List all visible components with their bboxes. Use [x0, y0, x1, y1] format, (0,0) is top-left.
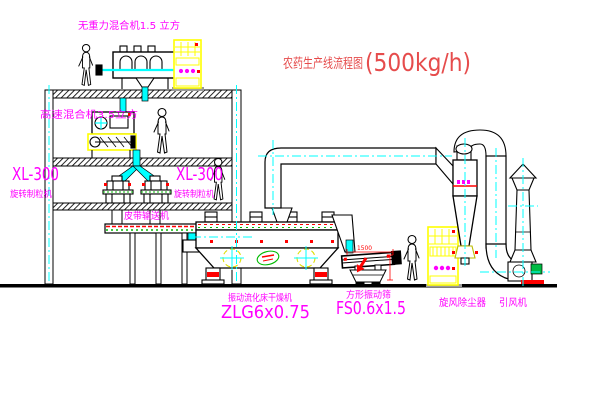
cad-flow-diagram: 无重力混合机1.5 立方 农药生产线流程图 (500kg/h) 高速混合机3.5…	[0, 0, 600, 403]
label-xl300-right: XL-300	[176, 164, 223, 185]
high-speed-mixer	[88, 98, 136, 158]
label-sieve-dimension: 1500	[357, 244, 372, 252]
label-gravity-mixer: 无重力混合机1.5 立方	[78, 19, 180, 32]
label-dryer-model: ZLG6x0.75	[221, 302, 310, 323]
worker-figure-4	[404, 236, 419, 281]
worker-figure-2	[154, 109, 169, 154]
exhaust-duct	[265, 148, 436, 208]
page-title-capacity: (500kg/h)	[365, 48, 471, 77]
label-high-speed-mixer: 高速混合机3.5立方	[40, 108, 138, 121]
page-title: 农药生产线流程图	[283, 56, 363, 72]
indicator-dot	[195, 43, 198, 46]
label-xl300-left: XL-300	[12, 164, 59, 185]
label-belt-conveyor: 皮带输送机	[124, 210, 169, 222]
label-cyclone: 旋风除尘器	[439, 296, 486, 309]
label-granulator-right: 旋转制粒机	[174, 188, 214, 200]
worker-figure-1	[79, 44, 93, 85]
fluid-bed-dryer	[183, 208, 338, 284]
drawing-canvas: 无重力混合机1.5 立方 农药生产线流程图 (500kg/h) 高速混合机3.5…	[0, 0, 600, 403]
granulator-right	[141, 176, 171, 203]
label-granulator-left: 旋转制粒机	[10, 188, 52, 200]
vibrating-sieve	[342, 249, 402, 285]
induced-draft-fan	[508, 262, 544, 284]
label-induced-fan: 引风机	[499, 296, 527, 309]
label-sieve-model: FS0.6x1.5	[336, 298, 406, 319]
granulator-left	[103, 176, 133, 203]
spring-mounts	[205, 212, 334, 222]
dryer-feet	[202, 268, 332, 284]
band-marking	[457, 180, 470, 184]
control-cabinet-1	[172, 40, 204, 91]
floor-slab-low	[45, 203, 237, 210]
ground-line	[0, 284, 557, 288]
